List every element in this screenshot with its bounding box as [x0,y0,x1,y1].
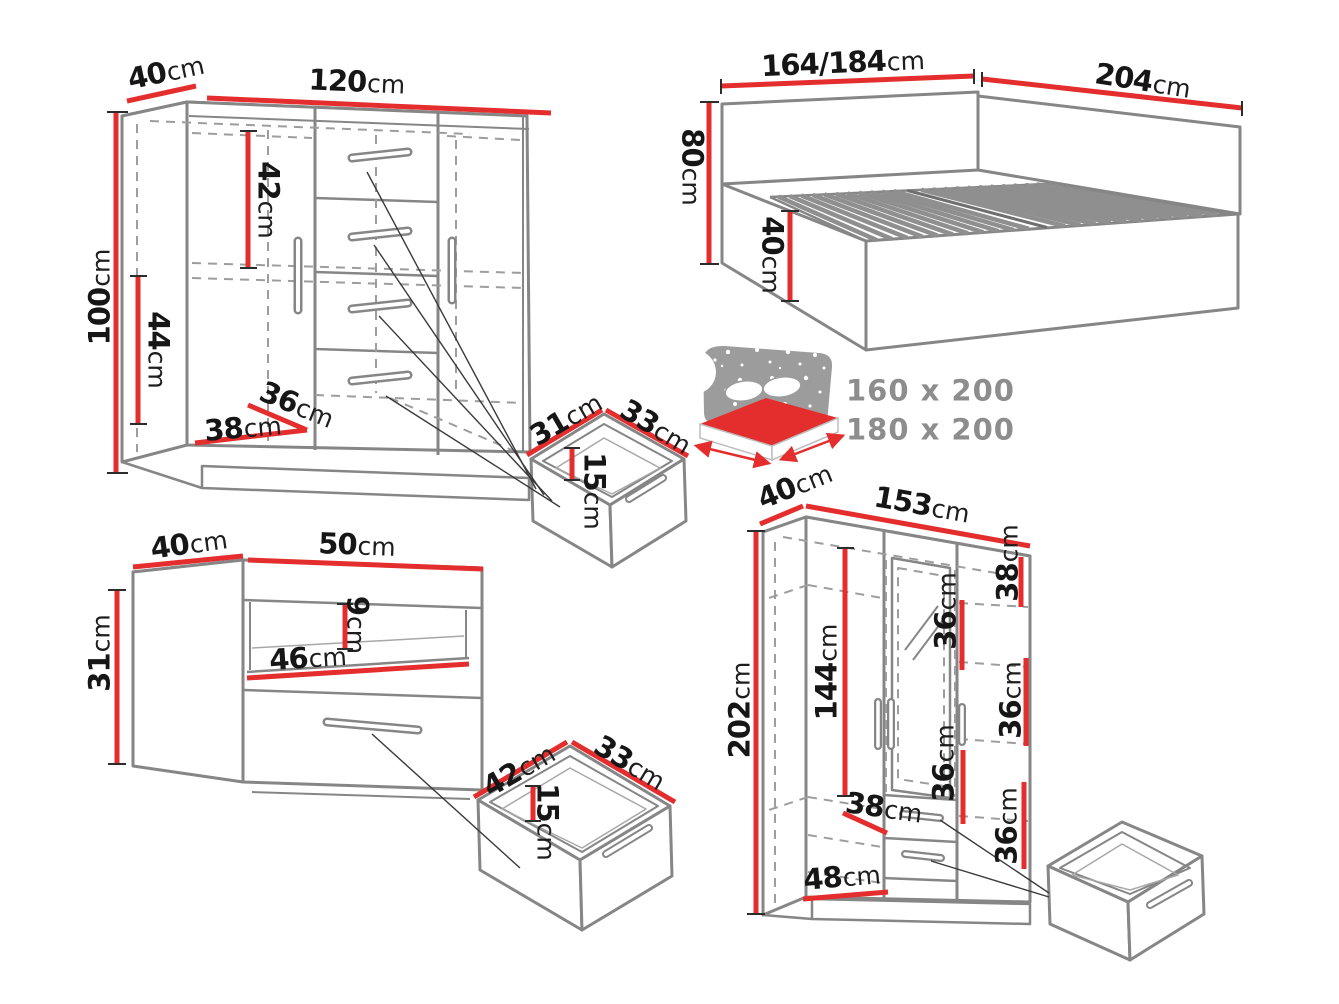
wardrobe-hanging-height-label: 144cm [813,624,842,721]
mattress-icon [672,346,842,463]
commode-lower-section-label: 44cm [144,311,173,388]
diagram-linework [0,0,1339,1004]
wardrobe-right-middle-label: 36cm [997,661,1026,738]
wardrobe-right-lower-label: 36cm [993,787,1022,864]
top-drawer-height-label: 15cm [580,452,609,529]
bottom-drawer-height-label: 15cm [533,783,562,860]
wardrobe-middle-upper-label: 36cm [932,572,961,649]
nightstand-inner-width-label: 46cm [268,641,347,675]
bed-headboard-height-label: 80cm [678,128,707,205]
commode-height-label: 100cm [86,249,115,346]
mattress-size-1: 160 x 200 [846,377,1015,406]
bed-width-label: 164/184cm [761,45,926,81]
nightstand-width-label: 50cm [318,529,396,561]
wardrobe-height-label: 202cm [726,662,755,759]
mattress-size-2: 180 x 200 [846,416,1015,445]
nightstand-height-label: 31cm [86,614,115,691]
right-drawer-drawing [1048,822,1204,960]
nightstand-niche-height-label: 9cm [343,596,372,654]
wardrobe-middle-lower-label: 36cm [930,724,959,801]
furniture-dimensions-diagram: 40cm 120cm 100cm 42cm 44cm 36cm 38cm 164… [0,0,1339,1004]
bed-base-height-label: 40cm [758,216,787,293]
wardrobe-right-top-label: 38cm [994,524,1023,601]
nightstand-drawing [133,560,482,799]
commode-drawing [122,102,530,500]
commode-width-label: 120cm [308,65,406,98]
commode-inner-width-label: 38cm [203,410,283,446]
wardrobe-bottom-inner-width-label: 48cm [802,859,882,895]
commode-upper-section-label: 42cm [254,161,283,238]
bed-drawing [722,92,1240,350]
